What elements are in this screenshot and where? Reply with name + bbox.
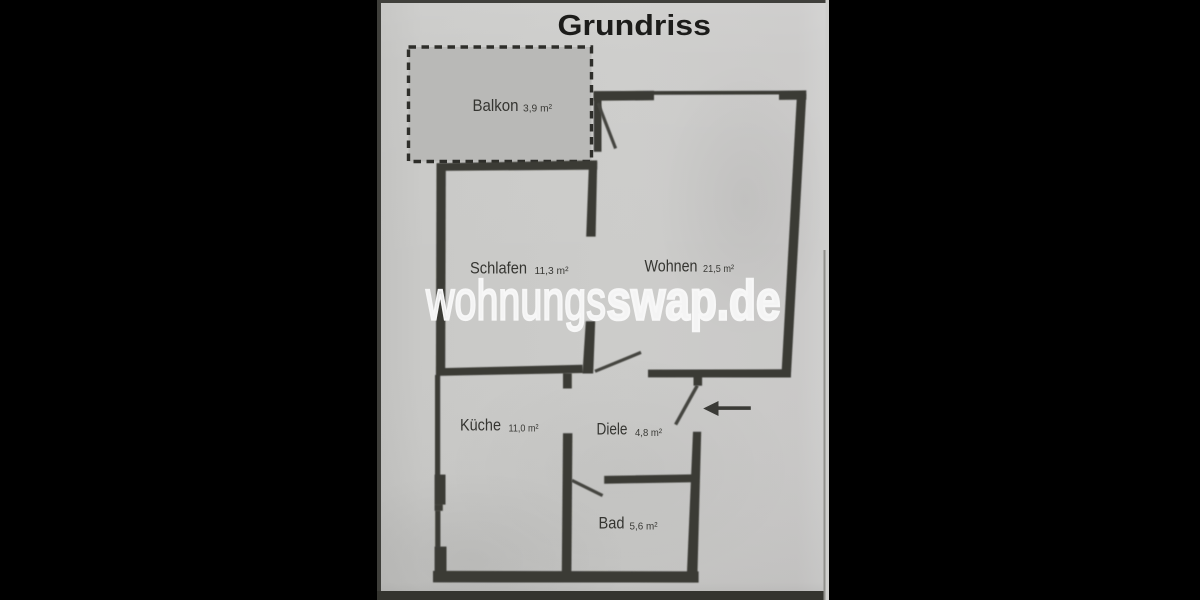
svg-text:3,9 m²: 3,9 m² (523, 103, 552, 115)
svg-text:11,0 m²: 11,0 m² (509, 423, 539, 435)
svg-text:Balkon: Balkon (473, 96, 519, 115)
svg-text:Diele: Diele (597, 420, 628, 439)
svg-text:Bad: Bad (599, 515, 625, 533)
svg-text:4,8 m²: 4,8 m² (635, 427, 662, 439)
svg-text:5,6 m²: 5,6 m² (630, 521, 658, 533)
svg-text:swap.de: swap.de (607, 269, 781, 332)
svg-text:wohnungs: wohnungs (425, 269, 606, 332)
svg-text:Grundriss: Grundriss (558, 10, 712, 42)
svg-text:Küche: Küche (460, 417, 501, 435)
